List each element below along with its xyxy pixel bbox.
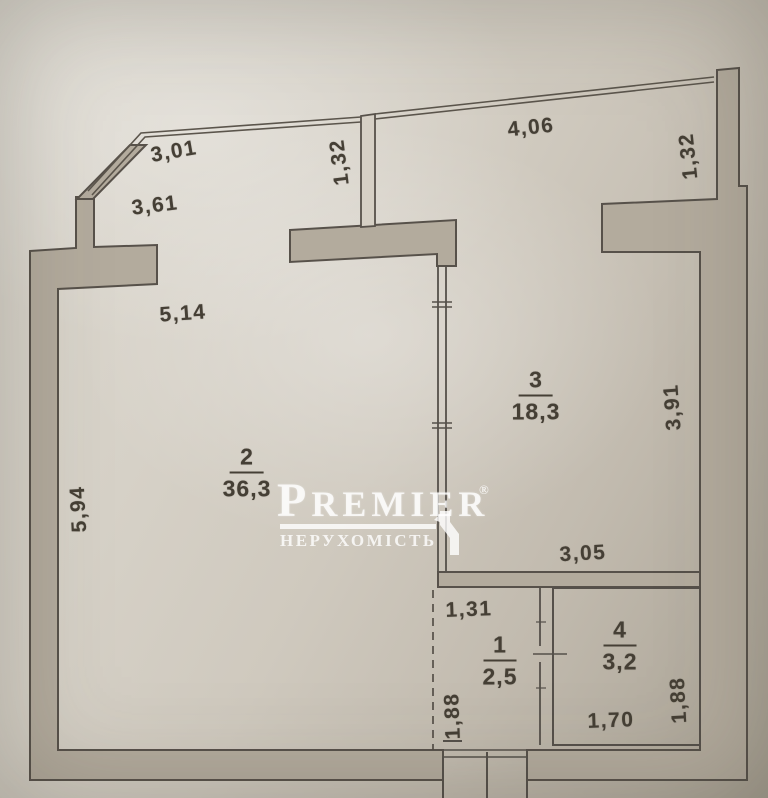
entrance-opening <box>443 741 527 798</box>
room4-area: 3,2 <box>603 649 638 676</box>
floor-plan-linework <box>0 0 768 798</box>
dim-room3-right-height: 3,91 <box>659 383 686 431</box>
registered-trademark-icon: ® <box>479 482 489 498</box>
room1-number: 1 <box>483 632 517 662</box>
dim-balcony-right-top: 4,06 <box>506 114 555 143</box>
room2-number: 2 <box>230 444 264 474</box>
watermark-divider <box>280 524 436 529</box>
dim-hallway-top-width: 1,31 <box>445 597 493 623</box>
dim-room3-bottom-width: 3,05 <box>559 541 607 567</box>
dim-room2-left-height: 5,94 <box>66 485 92 533</box>
dim-room2-top-width: 5,14 <box>159 300 207 327</box>
dim-balcony-right-depth: 1,32 <box>675 131 704 180</box>
room2-label: 2 36,3 <box>223 444 272 503</box>
room3-bottom-wall <box>438 572 700 587</box>
watermark-subtitle: НЕРУХОМІСТЬ <box>280 531 437 551</box>
balcony-railings <box>88 77 714 195</box>
diagonal-wall <box>77 145 146 199</box>
balcony-divider-wall <box>361 114 375 227</box>
room3-area: 18,3 <box>512 399 561 426</box>
room1-label: 1 2,5 <box>483 632 518 691</box>
floor-plan-photo: 3,01 3,61 1,32 4,06 1,32 5,14 5,94 3,91 … <box>0 0 768 798</box>
balcony-right-railing <box>375 77 714 114</box>
dim-hallway-left-height: 1,88 <box>440 692 466 740</box>
load-bearing-walls <box>30 68 747 780</box>
room3-number: 3 <box>519 367 553 397</box>
house-icon <box>432 510 460 556</box>
room3-label: 3 18,3 <box>512 367 561 426</box>
dim-room4-bottom-width: 1,70 <box>587 708 635 734</box>
room4-number: 4 <box>603 617 637 647</box>
room4-label: 4 3,2 <box>603 617 638 676</box>
room2-area: 36,3 <box>223 476 272 503</box>
room1-area: 2,5 <box>483 664 518 691</box>
dim-room4-right-height: 1,88 <box>666 676 692 724</box>
